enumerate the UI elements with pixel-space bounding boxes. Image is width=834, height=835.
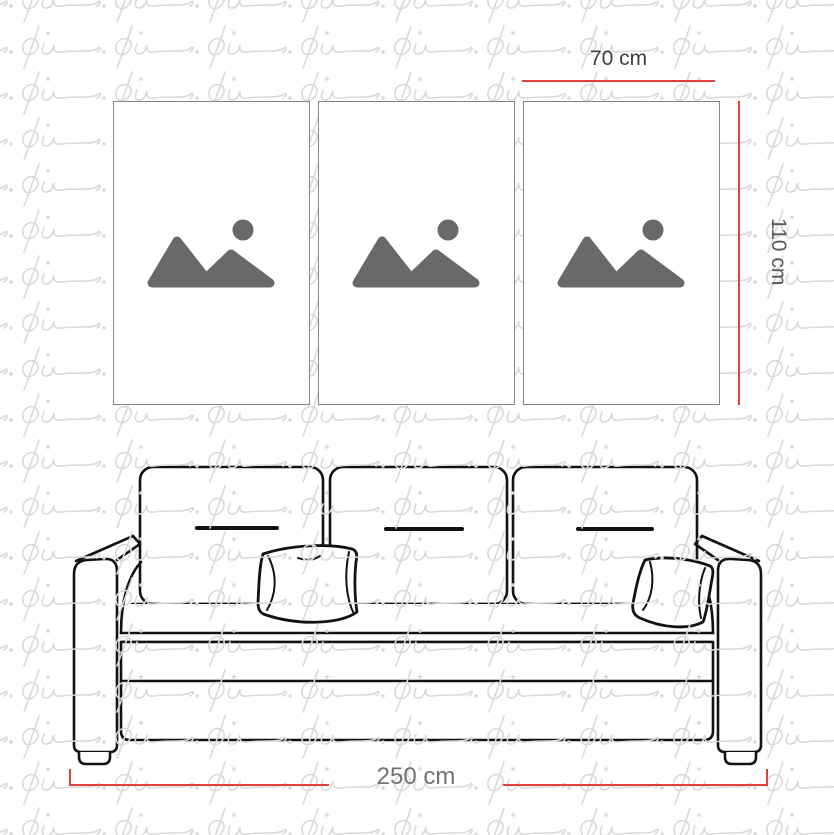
sofa-width-label: 250 cm — [329, 764, 503, 790]
panel-width-dimension-line — [522, 80, 715, 82]
sofa-width-dimension-line-left — [69, 784, 329, 786]
size-guide-diagram: 70 cm 110 cm 250 cm — [0, 0, 834, 835]
sofa-width-dimension-tick-left — [69, 769, 71, 786]
panel-height-label: 110 cm — [766, 218, 790, 285]
sofa-width-dimension-tick-right — [766, 769, 768, 786]
sofa-width-dimension-line-right — [503, 784, 768, 786]
panel-width-label: 70 cm — [522, 47, 715, 71]
panel-height-dimension-line — [738, 101, 740, 405]
